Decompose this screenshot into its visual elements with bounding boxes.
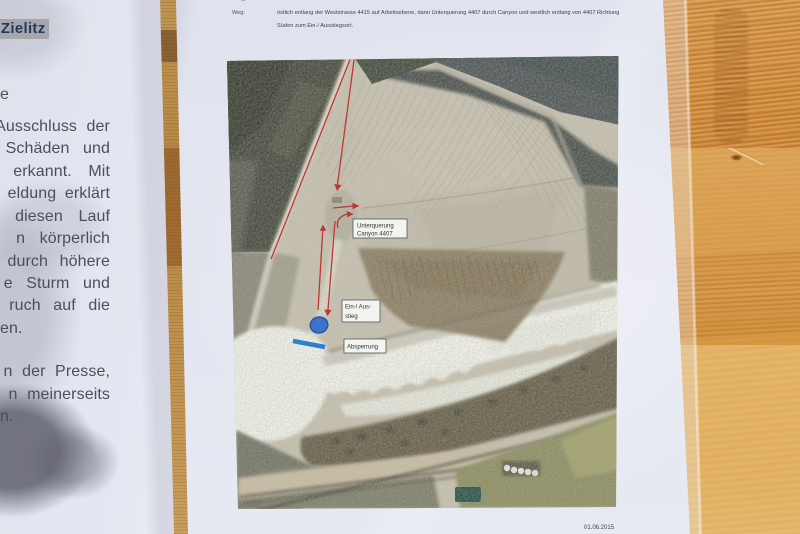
svg-text:Canyon 4407: Canyon 4407 bbox=[357, 232, 393, 238]
svg-text:Absperrung: Absperrung bbox=[347, 345, 378, 351]
svg-text:stieg: stieg bbox=[345, 314, 358, 320]
svg-text:Ein-/ Aus-: Ein-/ Aus- bbox=[345, 305, 371, 311]
svg-text:Unterquerung: Unterquerung bbox=[357, 224, 394, 230]
